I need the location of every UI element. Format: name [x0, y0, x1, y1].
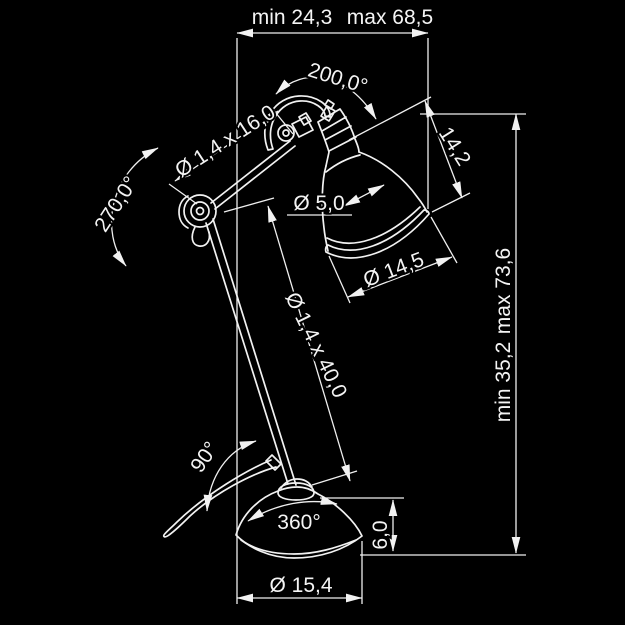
height-max-label: max 73,6 [492, 248, 515, 334]
base-rotation-label: 360° [277, 511, 320, 534]
height-min-label: min 35,2 [492, 342, 515, 423]
drawing-canvas: min 24,3 max 68,5 200,0° Ø 1,4 x 16,0 27… [0, 0, 625, 625]
lamp-dimension-drawing: min 24,3 max 68,5 200,0° Ø 1,4 x 16,0 27… [0, 0, 625, 625]
base-height-label: 6,0 [369, 520, 392, 549]
socket-diameter-label: Ø 5,0 [293, 192, 344, 215]
base-diameter-label: Ø 15,4 [269, 574, 332, 597]
width-max-label: max 68,5 [347, 6, 433, 29]
width-min-label: min 24,3 [252, 6, 333, 29]
